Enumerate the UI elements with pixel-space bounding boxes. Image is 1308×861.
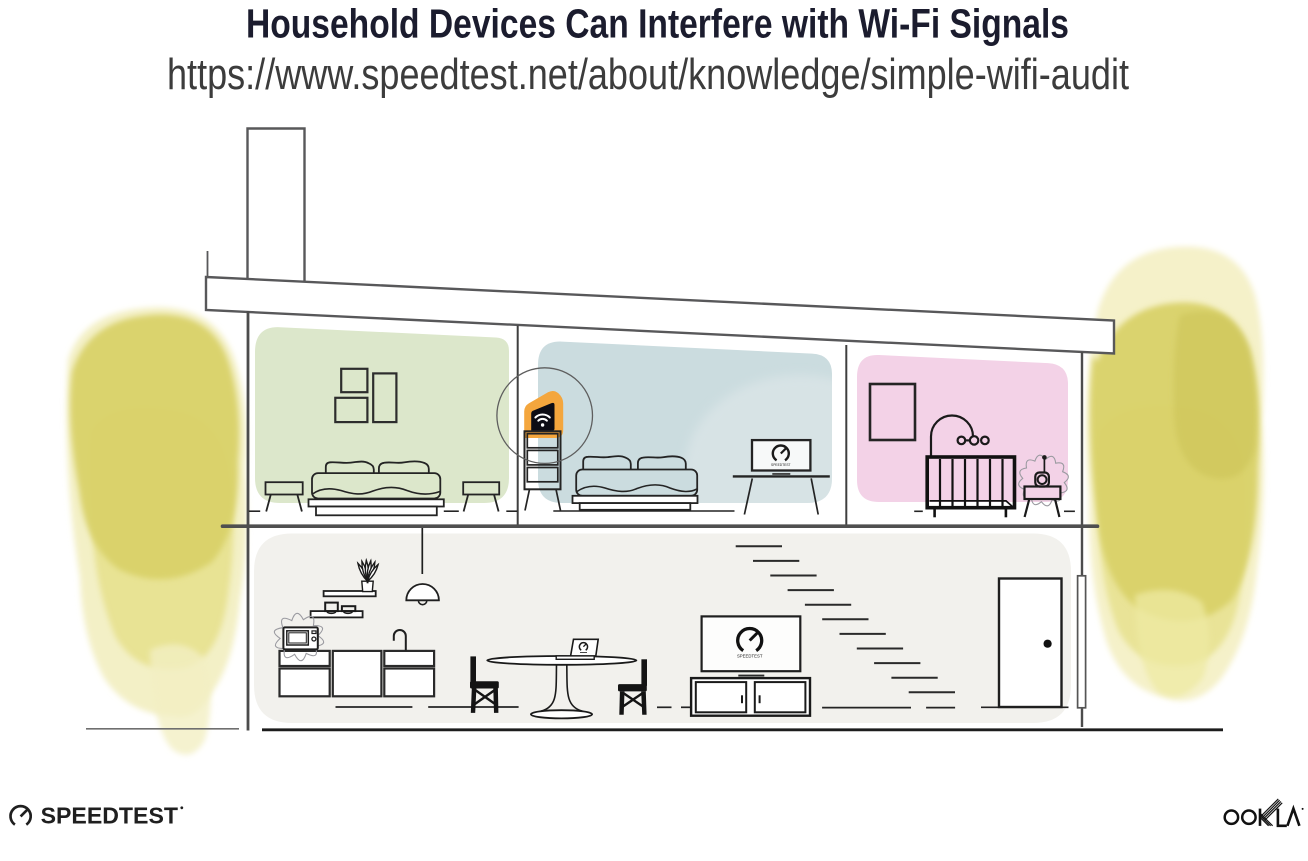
svg-text:Household Devices Can Interfer: Household Devices Can Interfere with Wi-… [246, 1, 1069, 47]
svg-text:https://www.speedtest.net/abou: https://www.speedtest.net/about/knowledg… [167, 50, 1129, 99]
svg-text:SPEEDTEST: SPEEDTEST [771, 463, 791, 467]
svg-text:SPEEDTEST: SPEEDTEST [41, 802, 179, 828]
svg-text:SPEEDTEST: SPEEDTEST [737, 654, 763, 659]
